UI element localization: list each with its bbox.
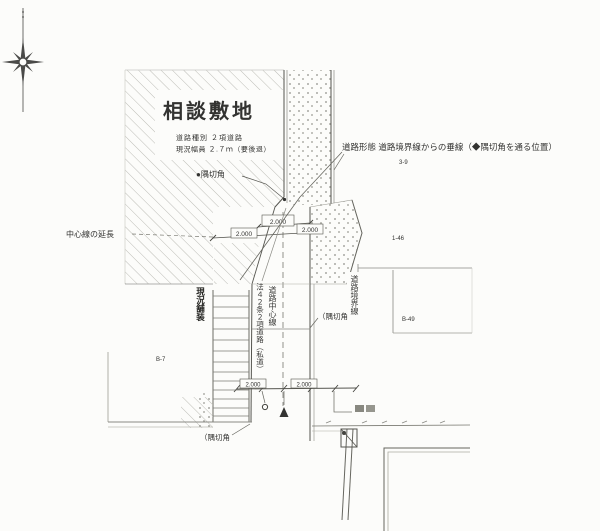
lot-number-label: B-7 — [156, 357, 166, 363]
dimension-value: 2.000 — [270, 219, 287, 226]
road-strip-upper — [275, 70, 334, 207]
pavement-vertical-label: 現況舗装 — [196, 287, 205, 321]
illegible-mark — [366, 405, 375, 412]
lot-number-label: B-49 — [402, 317, 415, 323]
site-note-line2: 現況幅員 ２.７ｍ（要後退） — [176, 145, 271, 154]
perpendicular-note-label: 道路形態 道路境界線からの垂線（◆隅切角を通る位置） — [342, 142, 557, 152]
site-note-line1: 道路種別 ２項道路 — [176, 133, 243, 142]
dimension-value: 2.000 — [302, 227, 319, 234]
site-plan-page: 2.000 2.000 2.000 2.000 2.000 — [0, 0, 600, 531]
illegible-mark — [355, 405, 364, 412]
corner-cut-mid-label: （隅切角 — [318, 311, 348, 321]
road-boundary-vertical-label: 道路境界線 — [350, 275, 358, 315]
corner-cut-bottom-label: （隅切角 — [200, 432, 230, 442]
corner-cut-top-label: ●隅切角 — [196, 169, 225, 179]
site-plan-svg: 2.000 2.000 2.000 2.000 2.000 — [0, 0, 600, 531]
road-law-vertical-label: 法４２条２項道路（私道） — [256, 283, 264, 373]
road-centerline-vertical-label: 道路中心線 — [268, 286, 276, 326]
centerline-extension-label: 中心線の延長 — [66, 229, 114, 239]
dimension-value: 2.000 — [296, 383, 312, 389]
dimension-value: 2.000 — [236, 231, 253, 238]
lot-number-label: 3-9 — [399, 160, 408, 166]
lot-number-label: 1-46 — [392, 236, 405, 242]
dimension-value: 2.000 — [245, 383, 261, 389]
site-name-label: 相談敷地 — [163, 99, 255, 123]
corner-point-marker — [283, 198, 286, 201]
